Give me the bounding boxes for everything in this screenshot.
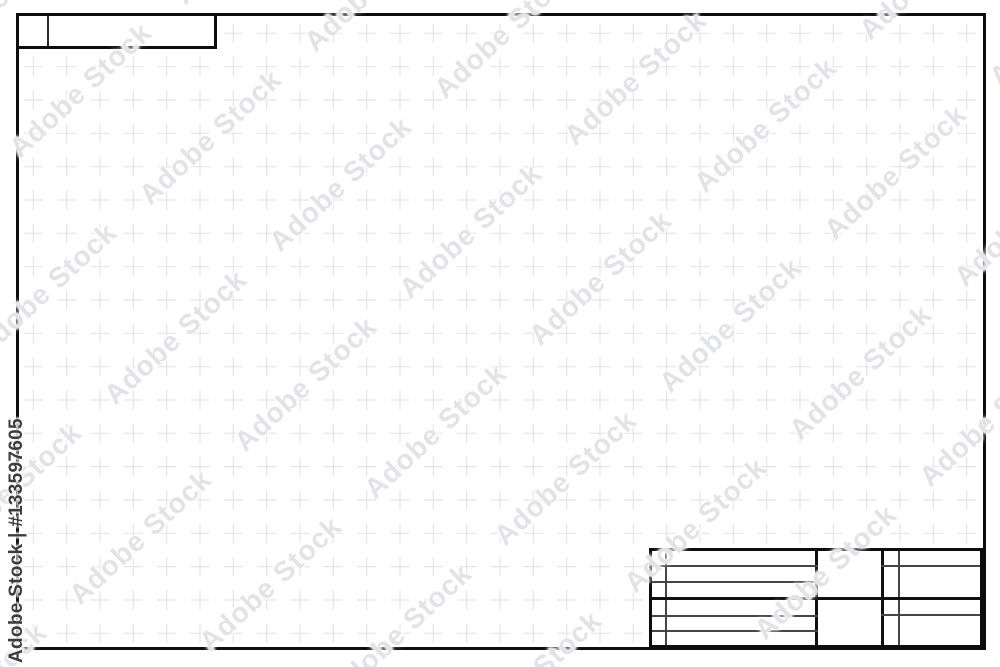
title-block-hline-left-row1 xyxy=(652,565,818,567)
title-block-hline-right-row2 xyxy=(881,614,980,616)
title-block-hline-left-row4 xyxy=(652,630,818,632)
title-block-hline-left-row2 xyxy=(652,581,818,583)
reference-box-divider xyxy=(47,16,49,46)
title-block xyxy=(649,548,983,648)
title-block-hline-left-row3 xyxy=(652,615,818,617)
title-block-hline-right-row1 xyxy=(881,565,980,567)
title-block-hline-heavy-middle xyxy=(652,597,980,600)
top-left-reference-box xyxy=(16,13,217,49)
drawing-template-sheet: Adobe StockAdobe StockAdobe StockAdobe S… xyxy=(0,0,1000,667)
